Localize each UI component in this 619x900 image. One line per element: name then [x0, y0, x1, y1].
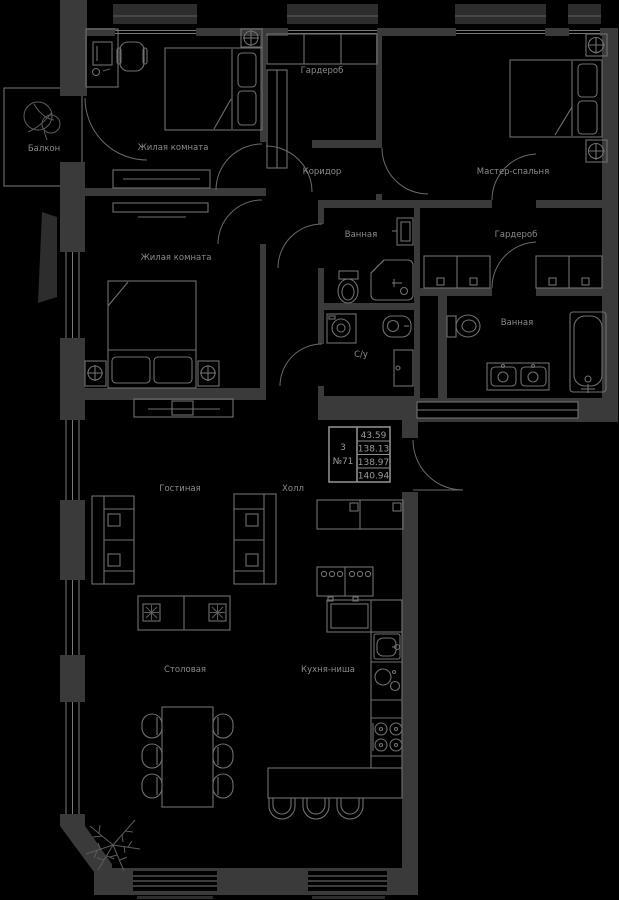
window-bottom-2: [308, 871, 387, 891]
window-left-3: [66, 580, 79, 655]
room2-tv-board: [113, 203, 208, 217]
unit-value-1: 43.59: [361, 431, 387, 441]
master-door-arc: [382, 148, 428, 194]
master-bed: [510, 60, 602, 137]
window-top-2: [288, 28, 377, 36]
window-left-2: [66, 420, 79, 500]
label-wc: С/у: [354, 350, 368, 360]
wc-washer: [327, 314, 356, 343]
label-bathroom-1: Ванная: [345, 230, 377, 240]
kitchen-island: [268, 768, 402, 819]
wc-sink: [383, 316, 411, 337]
kitchen-appliance: [375, 669, 400, 691]
label-bathroom-2: Ванная: [501, 318, 533, 328]
room2-nightstand-left: [85, 361, 106, 386]
label-living-room-2: Жилая комната: [141, 253, 212, 263]
room2-door-arc: [218, 200, 262, 244]
floor-plan: Балкон Жилая комната Жилая комната Гарде…: [0, 0, 619, 900]
label-balcony: Балкон: [28, 144, 60, 154]
unit-value-2: 138.13: [358, 445, 390, 455]
label-corridor: Коридор: [303, 167, 342, 177]
room1-chair: [117, 42, 147, 71]
window-top-1: [115, 28, 196, 36]
bathroom1-toilet: [338, 271, 358, 303]
exterior-sills: [38, 4, 601, 899]
window-top-4: [569, 28, 600, 36]
window-left-1: [66, 252, 79, 338]
label-wardrobe-1: Гардероб: [301, 66, 344, 76]
hall-cabinets: [317, 500, 403, 529]
window-top-3: [456, 28, 545, 36]
label-dining-room: Столовая: [164, 665, 206, 675]
dining-table: [142, 707, 233, 807]
label-master-bedroom: Мастер-спальня: [477, 167, 549, 177]
label-kitchen: Кухня-ниша: [301, 665, 355, 675]
bathroom2-toilet: [447, 315, 480, 337]
wall-top-left-pillar: [60, 0, 87, 96]
bathroom2-bathtub: [570, 312, 606, 393]
balcony-plant-icon: [24, 102, 60, 140]
console-table-plants: [138, 596, 230, 630]
walls: [60, 0, 618, 895]
bathroom2-vanity: [487, 363, 549, 390]
label-wardrobe-2: Гардероб: [495, 230, 538, 240]
bathroom1-shower: [371, 260, 413, 300]
entrance-door: [413, 440, 463, 490]
label-living-room: Гостиная: [159, 484, 200, 494]
label-living-room-1: Жилая комната: [138, 143, 209, 153]
room1-bed: [165, 48, 262, 130]
label-hall: Холл: [282, 484, 304, 494]
wardrobe2-door-arc: [492, 154, 536, 200]
window-band-right: [417, 402, 578, 418]
room1-door-arc: [216, 144, 262, 190]
unit-value-3: 138.97: [358, 458, 390, 468]
room1-desk: [86, 29, 118, 87]
unit-value-4: 140.94: [358, 472, 390, 482]
wardrobe2-closets: [424, 256, 602, 288]
bathroom2-door-arc: [492, 242, 536, 288]
wc-cabinet: [394, 350, 413, 386]
wall-chamfer: [60, 814, 112, 872]
room2-bed: [108, 281, 196, 388]
window-bottom-1: [133, 871, 217, 891]
room1-cabinet: [113, 170, 210, 188]
hall-coat-rack: [317, 567, 373, 601]
unit-number: №71: [333, 457, 354, 467]
unit-rooms-count: 3: [340, 443, 346, 453]
kitchen-stove: [373, 723, 402, 751]
room2-nightstand-right: [198, 361, 219, 386]
wc-door-arc: [280, 344, 322, 386]
window-left-4: [66, 702, 79, 814]
bathroom1-sink: [392, 218, 413, 245]
unit-info-table: 3 №71 43.59 138.13 138.97 140.94: [329, 427, 390, 482]
sofa-right: [234, 494, 276, 584]
kitchen-sink: [374, 634, 400, 659]
sofa-left: [92, 496, 134, 584]
bathroom1-door-arc: [278, 224, 322, 268]
living-room-tv-console: [134, 399, 233, 417]
